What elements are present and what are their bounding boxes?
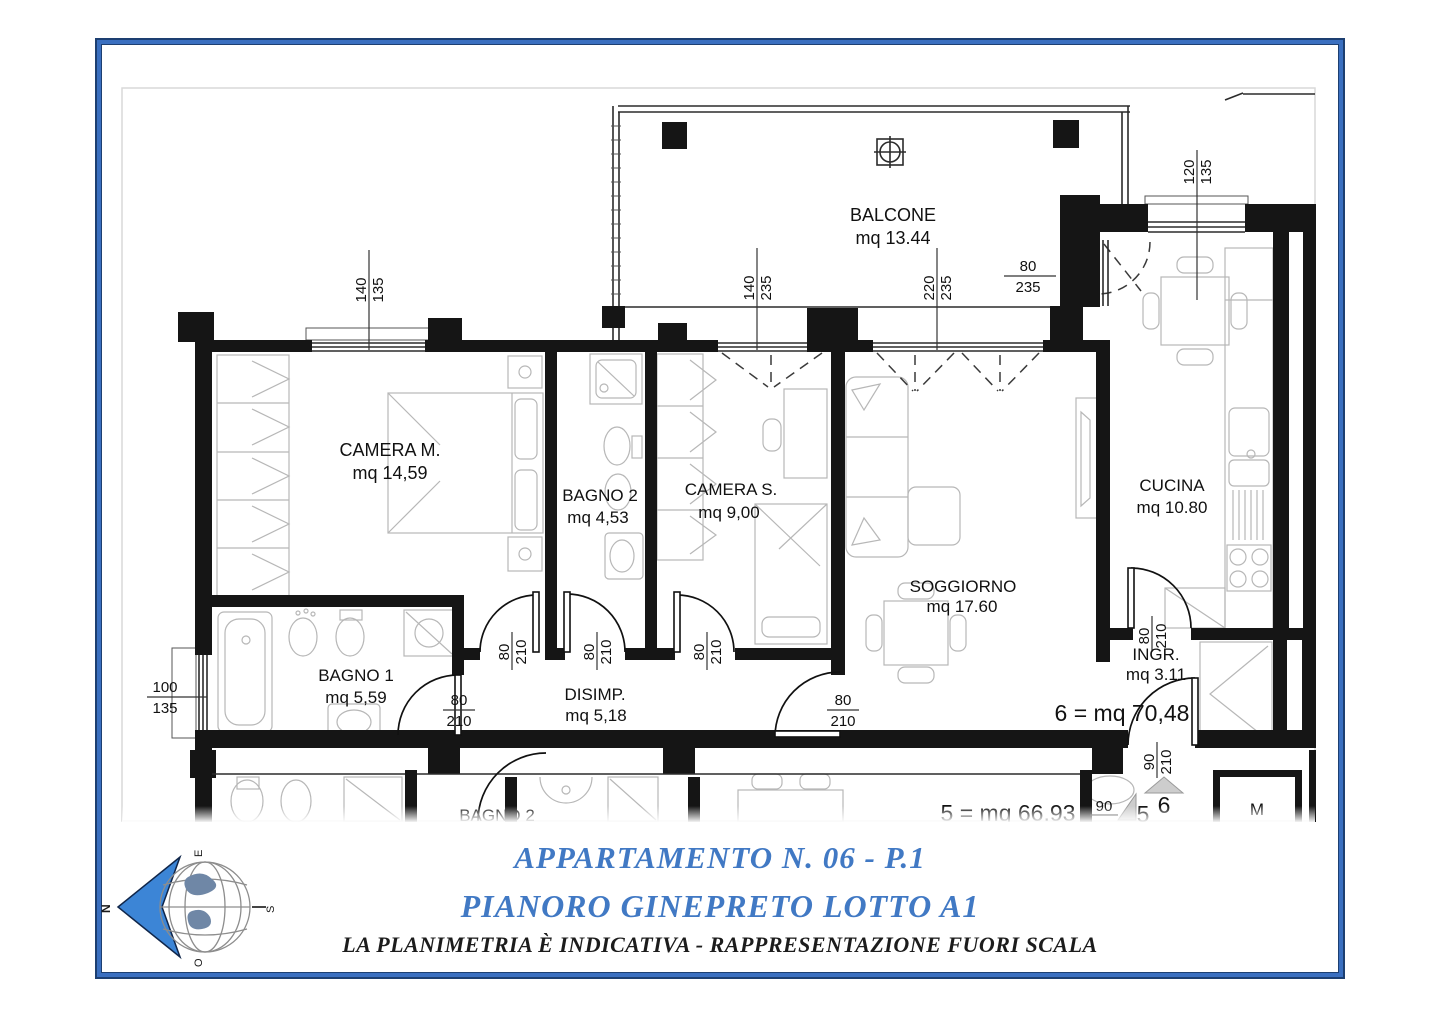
label-soggiorno-area: mq 17.60 bbox=[927, 597, 998, 616]
dim-soggiorno-door: 220 235 bbox=[921, 248, 955, 350]
soggiorno-furniture bbox=[846, 377, 1098, 683]
svg-text:80: 80 bbox=[691, 644, 708, 661]
floor-plan-drawing: 140 135 140 235 220 235 80 235 120 135 1… bbox=[120, 85, 1316, 822]
dim-door-camera-m: 80 210 bbox=[496, 632, 530, 670]
svg-text:80: 80 bbox=[835, 692, 852, 709]
label-cucina-area: mq 10.80 bbox=[1137, 498, 1208, 517]
dim-door-soggiorno: 80 210 bbox=[827, 692, 859, 730]
compass-west-label: O bbox=[193, 958, 205, 967]
dim-camera-m-window: 140 135 bbox=[353, 250, 387, 350]
svg-text:135: 135 bbox=[1198, 159, 1215, 184]
label-cucina: CUCINA bbox=[1139, 476, 1205, 495]
svg-text:210: 210 bbox=[513, 639, 530, 664]
door-bagno2 bbox=[564, 592, 625, 652]
label-bagno1-area: mq 5,59 bbox=[325, 688, 386, 707]
door-camera-m bbox=[480, 592, 539, 652]
svg-text:135: 135 bbox=[370, 277, 387, 302]
dim-door-entrance: 90 210 bbox=[1141, 742, 1175, 778]
label-balcone: BALCONE bbox=[850, 205, 936, 225]
svg-text:210: 210 bbox=[446, 713, 471, 730]
title-apartment: APPARTAMENTO N. 06 - P.1 bbox=[97, 840, 1343, 876]
svg-text:235: 235 bbox=[1015, 279, 1040, 296]
bottom-fade bbox=[122, 806, 1315, 822]
label-balcone-area: mq 13.44 bbox=[855, 228, 930, 248]
svg-text:235: 235 bbox=[758, 275, 775, 300]
balcony-drain-icon bbox=[874, 136, 906, 168]
label-disimp: DISIMP. bbox=[564, 685, 625, 704]
door-cucina bbox=[1128, 568, 1191, 628]
dim-camera-s-door: 140 235 bbox=[741, 248, 775, 350]
dim-cucina-balcony-door: 80 235 bbox=[1004, 258, 1056, 296]
svg-text:210: 210 bbox=[598, 639, 615, 664]
svg-text:90: 90 bbox=[1141, 754, 1158, 771]
dim-bagno1-window: 100 135 bbox=[147, 679, 207, 717]
cucina-balcony-door bbox=[1098, 240, 1150, 306]
cucina-furniture bbox=[1143, 248, 1316, 636]
dim-door-camera-s: 80 210 bbox=[691, 632, 725, 670]
label-soggiorno: SOGGIORNO bbox=[910, 577, 1017, 596]
camera-m-window bbox=[306, 328, 429, 351]
svg-text:80: 80 bbox=[451, 692, 468, 709]
door-camera-s bbox=[674, 592, 734, 652]
label-camera-s: CAMERA S. bbox=[685, 480, 778, 499]
svg-text:235: 235 bbox=[938, 275, 955, 300]
svg-text:140: 140 bbox=[353, 277, 370, 302]
svg-text:80: 80 bbox=[496, 644, 513, 661]
svg-text:140: 140 bbox=[741, 275, 758, 300]
svg-text:80: 80 bbox=[581, 644, 598, 661]
svg-text:220: 220 bbox=[921, 275, 938, 300]
svg-text:100: 100 bbox=[152, 679, 177, 696]
label-camera-m: CAMERA M. bbox=[339, 440, 440, 460]
label-ingr-area: mq 3.11 bbox=[1126, 665, 1186, 684]
svg-text:135: 135 bbox=[152, 700, 177, 717]
floor-plan-page: 140 135 140 235 220 235 80 235 120 135 1… bbox=[0, 0, 1440, 1019]
dim-door-bagno2: 80 210 bbox=[581, 632, 615, 670]
bagno2-fixtures bbox=[590, 354, 643, 579]
label-camera-s-area: mq 9,00 bbox=[698, 503, 759, 522]
svg-text:120: 120 bbox=[1181, 159, 1198, 184]
svg-text:210: 210 bbox=[830, 713, 855, 730]
label-disimp-area: mq 5,18 bbox=[565, 706, 626, 725]
camera-s-furniture bbox=[657, 354, 827, 644]
svg-text:210: 210 bbox=[1158, 749, 1175, 774]
svg-text:210: 210 bbox=[708, 639, 725, 664]
title-disclaimer: LA PLANIMETRIA È INDICATIVA - RAPPRESENT… bbox=[97, 932, 1343, 958]
label-bagno1: BAGNO 1 bbox=[318, 666, 394, 685]
apt6-total-area: 6 = mq 70,48 bbox=[1055, 700, 1190, 726]
label-ingr: INGR. bbox=[1132, 645, 1179, 664]
title-location: PIANORO GINEPRETO LOTTO A1 bbox=[97, 888, 1343, 925]
svg-text:80: 80 bbox=[1020, 258, 1037, 275]
label-bagno2-area: mq 4,53 bbox=[567, 508, 628, 527]
svg-text:80: 80 bbox=[1136, 628, 1153, 645]
label-camera-m-area: mq 14,59 bbox=[352, 463, 427, 483]
soggiorno-french-door bbox=[873, 343, 1043, 391]
label-bagno2: BAGNO 2 bbox=[562, 486, 638, 505]
roof-edge-mark bbox=[1225, 93, 1315, 100]
